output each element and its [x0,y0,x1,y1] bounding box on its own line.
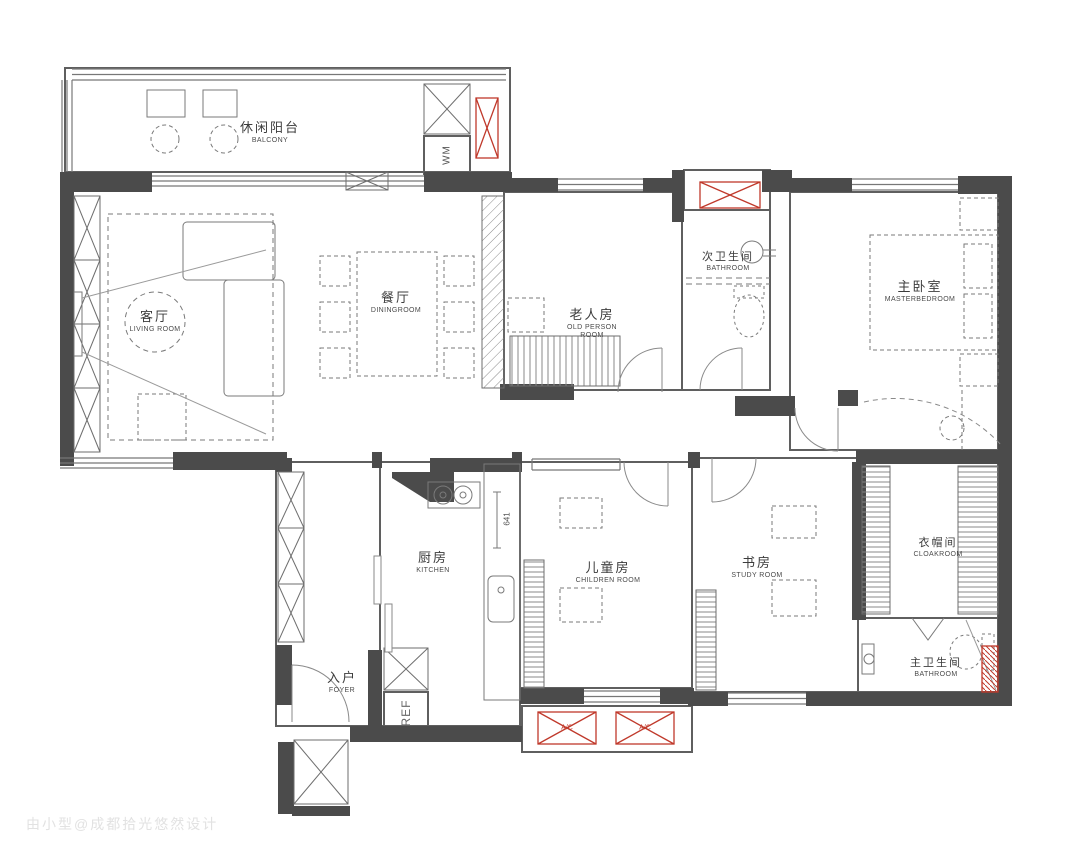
entry-shaft [294,740,348,804]
balcony-shaft [424,84,470,134]
cloakroom-wardrobe-left [862,466,890,614]
balcony-table-chairs [147,90,238,153]
dining-tall-cabinet [482,196,504,388]
living-room-furniture [74,214,284,440]
bath-duct-box [700,182,760,208]
master-bath-fixtures [862,618,996,690]
children-door [624,462,668,506]
old-person-bed [508,298,620,386]
cloakroom-wardrobe-right [958,466,998,614]
ac-platform-box-2 [616,712,674,744]
master-door [795,398,1002,451]
balcony-duct-box [476,98,498,158]
study-desk [772,506,816,616]
floor-plan-drawing [0,0,1080,864]
second-bath-fixtures [686,241,776,337]
kitchen-sliding-door [374,556,392,652]
entry-door [292,665,349,722]
study-door [712,458,756,502]
tv-wall-cabinet [74,196,100,452]
children-wardrobe [524,560,544,688]
master-bed [870,198,998,450]
study-bookshelf [696,590,716,690]
door-layer [292,348,1002,722]
floor-plan-page: 休闲阳台 BALCONY 客厅 LIVING ROOM 餐厅 DININGROO… [0,0,1080,864]
ac-platform-box-1 [538,712,596,744]
dining-table-chairs [320,252,474,378]
second-bath-door [700,348,742,390]
children-desk [560,498,602,622]
ac-duct-layer [476,98,998,744]
master-bath-duct [982,646,998,692]
old-person-door [618,348,662,392]
kitchen-cabinet [384,648,428,690]
foyer-cabinet [278,472,304,642]
